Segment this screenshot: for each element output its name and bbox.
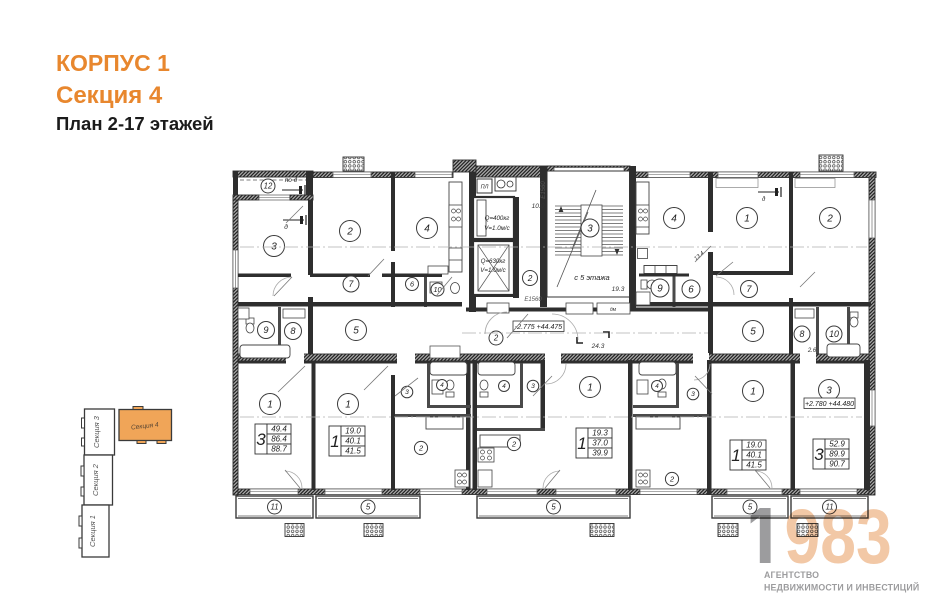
svg-text:5: 5: [750, 326, 756, 337]
svg-text:АГЕНТСТВО: АГЕНТСТВО: [764, 570, 819, 580]
svg-text:1: 1: [731, 446, 740, 465]
svg-text:1: 1: [330, 432, 339, 451]
svg-text:40.1: 40.1: [746, 451, 762, 460]
svg-text:2: 2: [826, 213, 833, 224]
svg-text:2: 2: [418, 444, 423, 453]
svg-text:11: 11: [270, 503, 278, 512]
svg-text:ПЛ: ПЛ: [481, 185, 489, 191]
svg-text:Секция 4: Секция 4: [56, 82, 163, 109]
svg-text:7: 7: [746, 284, 752, 294]
svg-text:86.4: 86.4: [271, 435, 287, 444]
svg-text:2: 2: [669, 475, 674, 484]
svg-text:3: 3: [405, 389, 409, 396]
svg-text:5: 5: [551, 503, 556, 512]
svg-text:-2.775 +44.475: -2.775 +44.475: [515, 324, 562, 331]
svg-text:41.5: 41.5: [345, 447, 361, 456]
svg-text:5: 5: [748, 503, 753, 512]
svg-text:по д: по д: [285, 176, 298, 184]
svg-text:4: 4: [655, 383, 659, 390]
svg-text:Секция 2: Секция 2: [91, 463, 100, 496]
svg-text:4: 4: [502, 383, 506, 390]
svg-text:3: 3: [814, 445, 824, 464]
svg-text:КОРПУС 1: КОРПУС 1: [56, 50, 170, 76]
svg-text:+2.780 +44.480: +2.780 +44.480: [805, 401, 854, 408]
svg-text:НЕДВИЖИМОСТИ И ИНВЕСТИЦИЙ: НЕДВИЖИМОСТИ И ИНВЕСТИЦИЙ: [764, 582, 919, 593]
svg-text:41.5: 41.5: [746, 461, 762, 470]
svg-text:8: 8: [800, 329, 805, 339]
svg-text:1: 1: [345, 399, 351, 410]
svg-text:2: 2: [527, 273, 533, 283]
svg-text:10: 10: [829, 329, 839, 339]
svg-text:12: 12: [264, 182, 273, 191]
svg-text:2: 2: [493, 334, 499, 343]
svg-text:дм: дм: [610, 307, 617, 313]
svg-text:983: 983: [785, 495, 892, 581]
svg-text:6: 6: [688, 284, 694, 295]
svg-text:2.6: 2.6: [807, 348, 817, 354]
svg-text:9: 9: [657, 283, 663, 294]
svg-text:1: 1: [267, 399, 273, 410]
svg-text:1: 1: [587, 382, 593, 393]
svg-text:19.3: 19.3: [592, 429, 608, 438]
svg-text:2: 2: [511, 440, 516, 449]
svg-text:3: 3: [826, 385, 832, 396]
svg-text:8: 8: [290, 326, 296, 336]
svg-text:19.0: 19.0: [345, 427, 361, 436]
svg-text:5: 5: [366, 503, 371, 512]
svg-text:Е1560: Е1560: [541, 181, 547, 199]
svg-text:V=1.0м/с: V=1.0м/с: [480, 267, 506, 274]
svg-text:49.4: 49.4: [271, 425, 287, 434]
svg-text:3: 3: [531, 383, 535, 390]
svg-text:1: 1: [577, 434, 586, 453]
svg-text:3: 3: [256, 430, 266, 449]
svg-text:4: 4: [440, 382, 444, 389]
svg-text:План 2-17 этажей: План 2-17 этажей: [56, 113, 214, 134]
svg-text:4: 4: [671, 213, 677, 224]
svg-text:д: д: [284, 223, 288, 231]
svg-text:Е1560: Е1560: [524, 297, 542, 303]
svg-text:с 5 этажа: с 5 этажа: [574, 273, 609, 282]
svg-text:19.0: 19.0: [746, 441, 762, 450]
svg-text:Секция 1: Секция 1: [88, 515, 97, 547]
svg-text:88.7: 88.7: [271, 445, 287, 454]
svg-text:V=1.0м/с: V=1.0м/с: [484, 225, 510, 232]
svg-text:10: 10: [433, 285, 441, 294]
svg-text:19.3: 19.3: [612, 286, 625, 293]
svg-text:39.9: 39.9: [592, 449, 608, 458]
svg-text:4: 4: [424, 223, 430, 234]
svg-text:3: 3: [587, 223, 593, 234]
svg-text:9: 9: [263, 325, 268, 335]
svg-text:2: 2: [346, 226, 353, 237]
svg-text:3: 3: [691, 391, 695, 398]
svg-text:Q=400кг: Q=400кг: [485, 215, 510, 222]
svg-text:1: 1: [744, 213, 750, 224]
svg-text:40.1: 40.1: [345, 437, 361, 446]
svg-text:Секция 3: Секция 3: [92, 415, 101, 448]
svg-text:89.9: 89.9: [829, 450, 845, 459]
svg-text:24.3: 24.3: [591, 343, 605, 350]
svg-text:90.7: 90.7: [829, 460, 845, 469]
svg-text:10.0: 10.0: [532, 203, 545, 210]
svg-text:1: 1: [750, 386, 756, 397]
svg-text:Q=630кг: Q=630кг: [481, 258, 506, 265]
svg-text:5: 5: [353, 325, 359, 336]
svg-text:52.9: 52.9: [829, 440, 845, 449]
svg-text:37.0: 37.0: [592, 439, 608, 448]
